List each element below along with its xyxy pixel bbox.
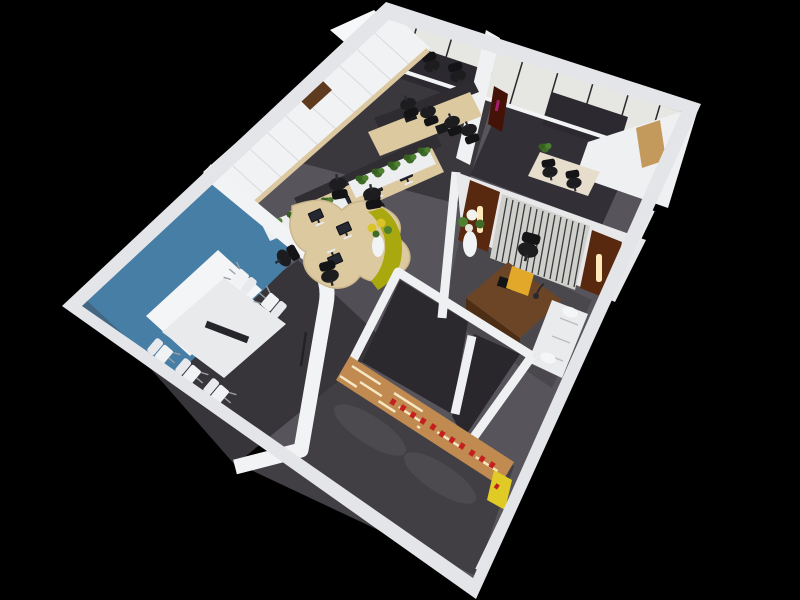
floorplan-svg — [0, 0, 800, 600]
sconce-light-right — [596, 254, 602, 282]
floorplan-render — [0, 0, 800, 600]
